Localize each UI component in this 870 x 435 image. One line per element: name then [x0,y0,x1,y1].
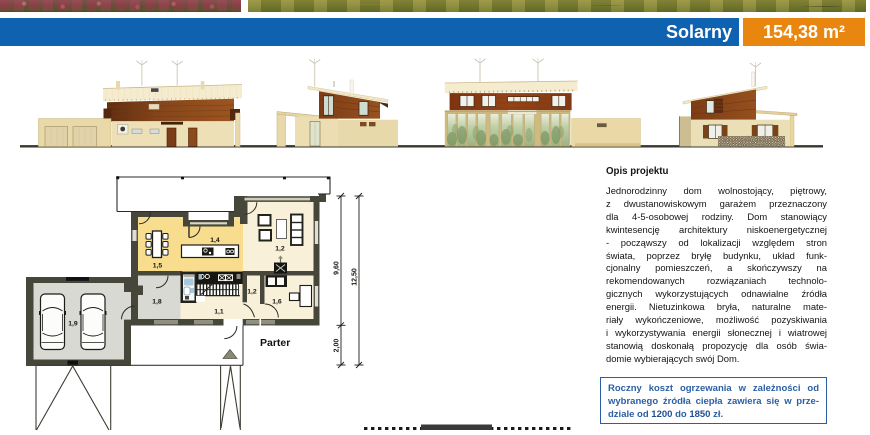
svg-text:1,6: 1,6 [272,299,282,306]
svg-text:9,60: 9,60 [334,261,341,275]
svg-text:Parter: Parter [260,337,290,349]
svg-text:1,2: 1,2 [247,289,257,296]
svg-text:12,50: 12,50 [352,268,359,286]
svg-text:1,5: 1,5 [153,263,163,270]
svg-text:1,9: 1,9 [68,321,78,328]
svg-text:1,4: 1,4 [210,237,220,244]
svg-text:1,2: 1,2 [275,246,285,253]
svg-text:1,8: 1,8 [152,299,162,306]
svg-text:1,1: 1,1 [214,309,224,316]
svg-text:2,00: 2,00 [334,339,341,353]
